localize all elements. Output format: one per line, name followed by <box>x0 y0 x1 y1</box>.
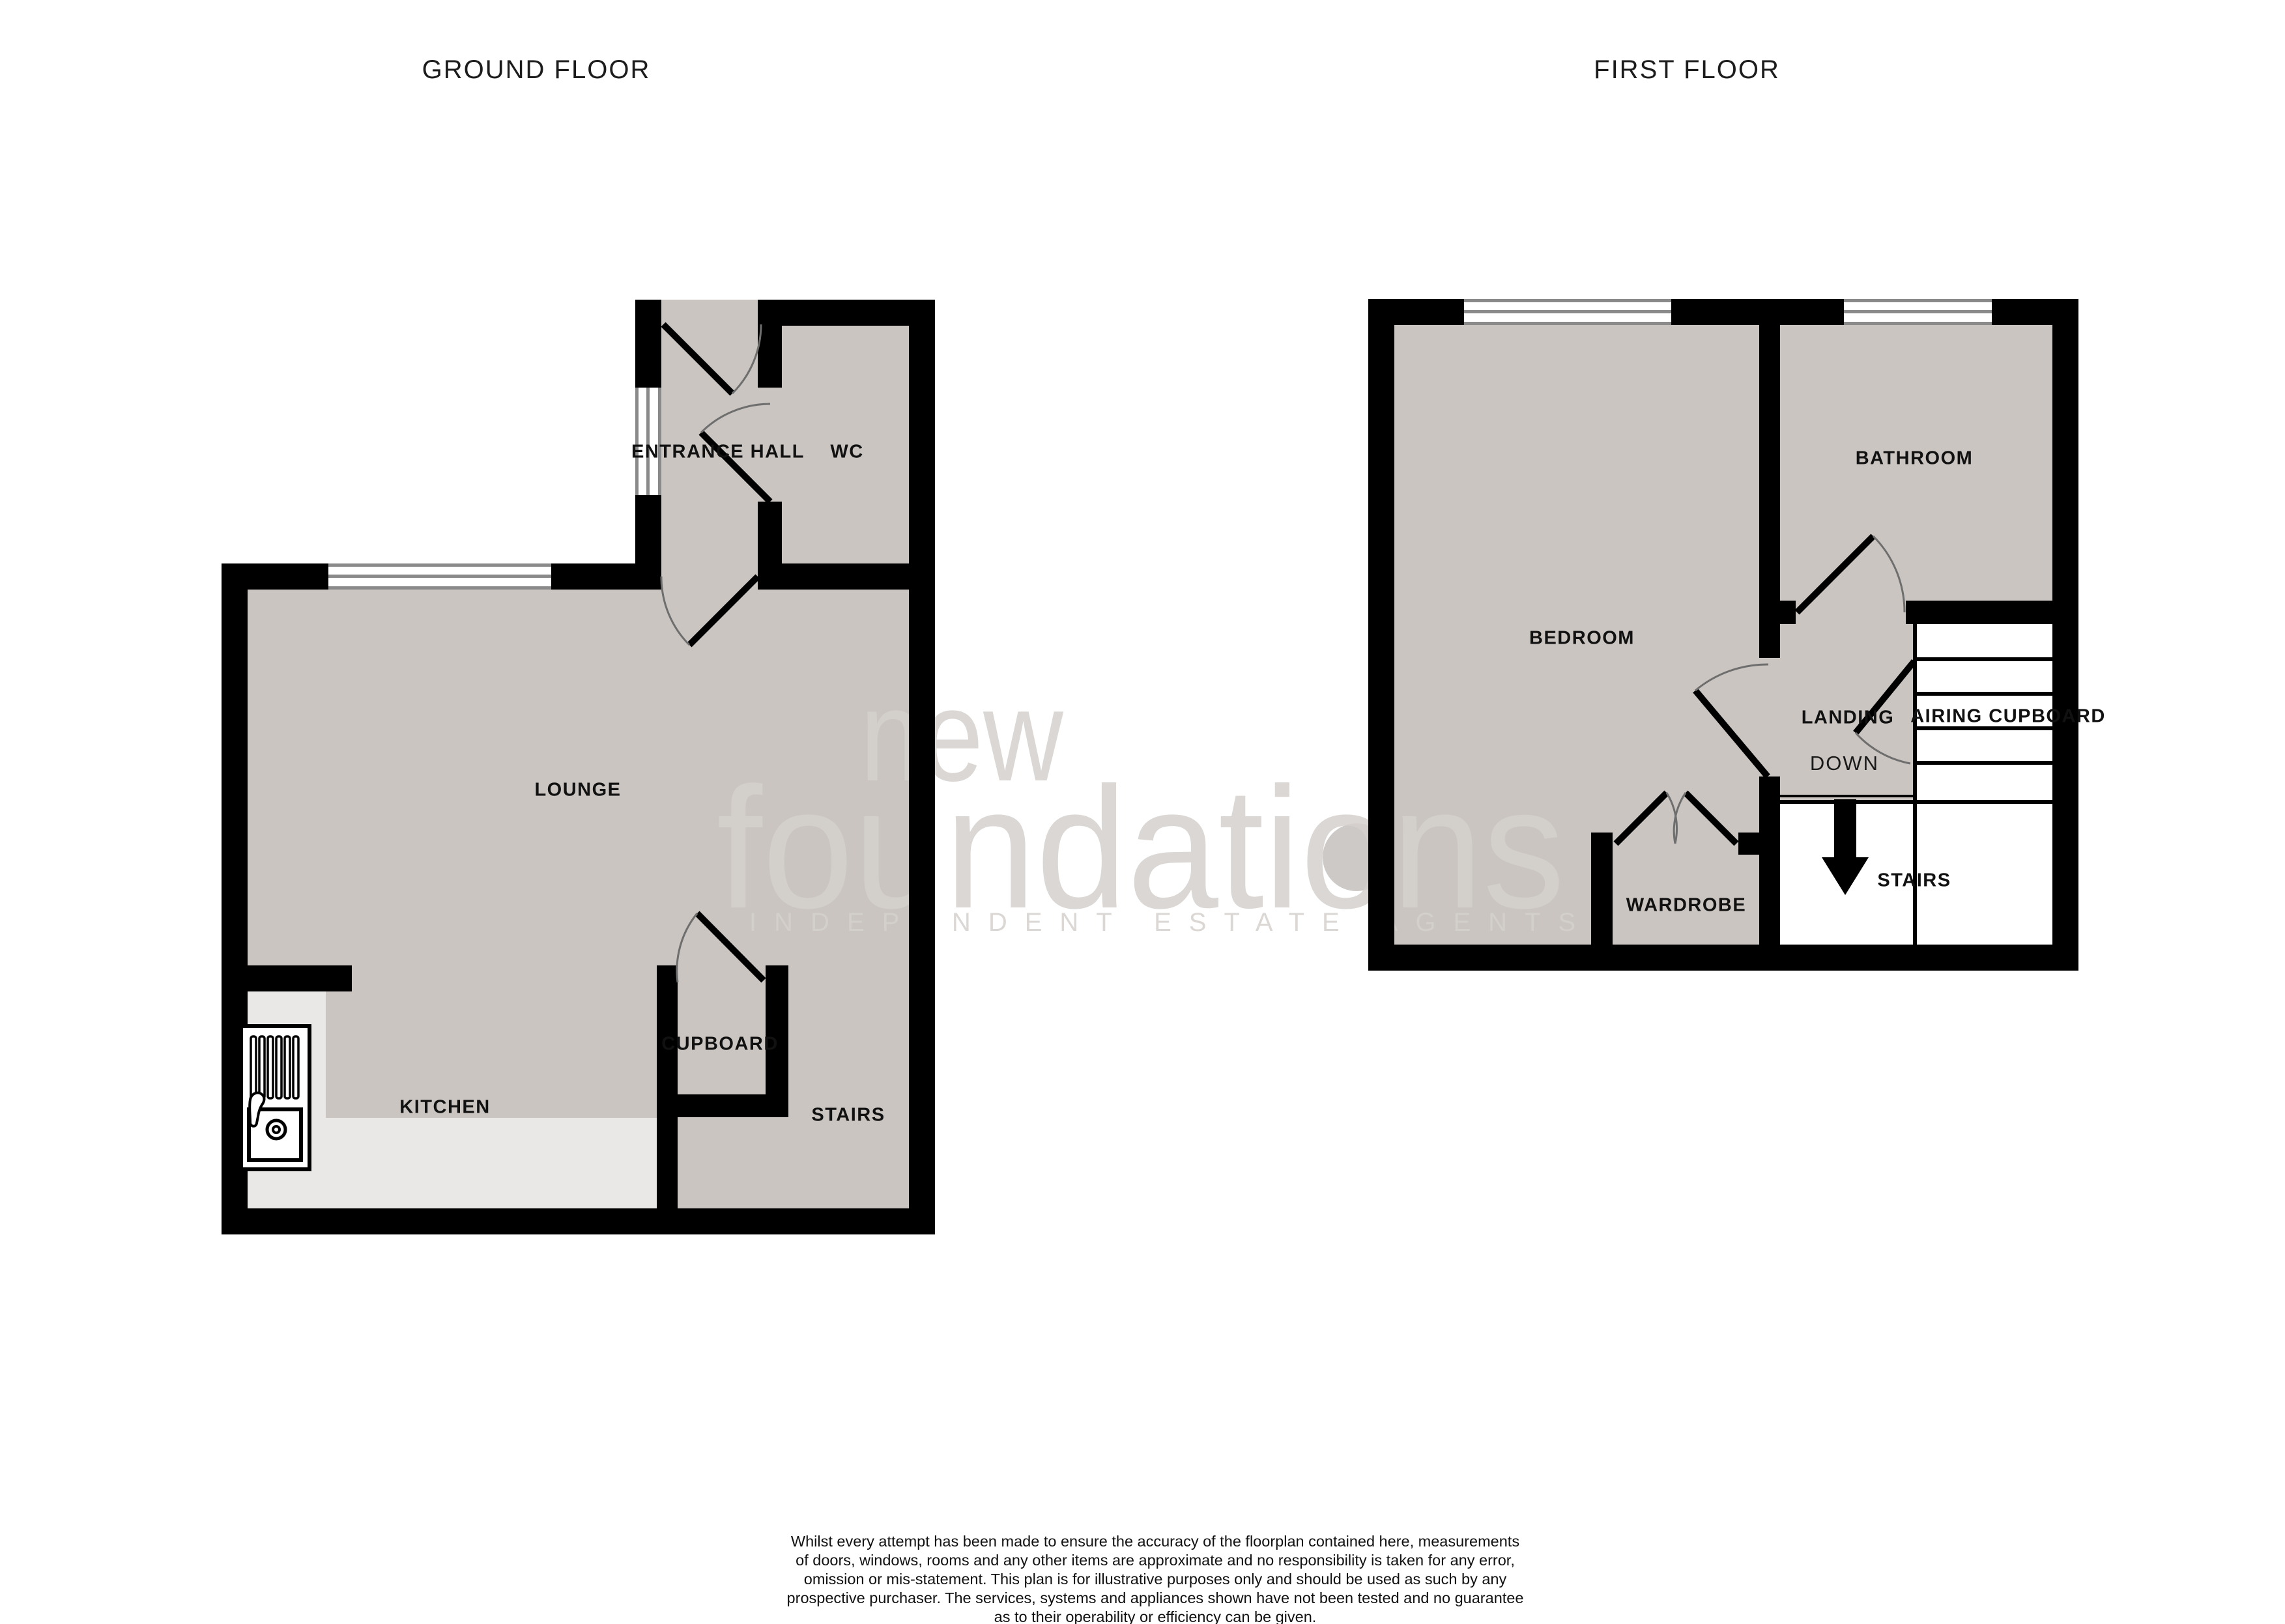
bedroom-door-arc <box>1695 664 1768 691</box>
room-label-cupboard: CUPBOARD <box>661 1034 779 1055</box>
floorplan-symbols <box>0 0 2285 1624</box>
stairs-down-arrow-icon <box>1822 799 1869 895</box>
room-label-wardrobe: WARDROBE <box>1626 895 1746 917</box>
bathroom-door-leaf <box>1797 536 1873 612</box>
wardrobe-door-right-leaf <box>1686 793 1736 844</box>
hall-lounge-door-leaf <box>689 577 758 645</box>
entrance-door-arc <box>732 324 761 393</box>
room-label-kitchen: KITCHEN <box>399 1097 490 1118</box>
kitchen-sink-icon <box>241 1026 309 1169</box>
disclaimer-line: Whilst every attempt has been made to en… <box>719 1532 1592 1551</box>
room-label-wc: WC <box>830 442 863 463</box>
wc-door-arc <box>701 404 770 433</box>
room-label-lounge: LOUNGE <box>534 780 621 801</box>
wardrobe-door-left-leaf <box>1616 793 1667 844</box>
floorplan-page: GROUND FLOOR FIRST FLOOR new foundations… <box>0 0 2285 1624</box>
room-label-stairs-ground: STAIRS <box>811 1105 885 1126</box>
disclaimer-line: omission or mis-statement. This plan is … <box>719 1570 1592 1589</box>
room-label-stairs-first: STAIRS <box>1877 870 1951 892</box>
room-label-airing-cupboard: AIRING CUPBOARD <box>1910 706 2106 728</box>
door-leaves-ground <box>663 324 770 980</box>
door-arcs-ground <box>661 324 770 982</box>
hall-lounge-door-arc <box>661 577 689 645</box>
room-label-bedroom: BEDROOM <box>1529 628 1635 649</box>
label-down: DOWN <box>1810 752 1879 775</box>
cupboard-door-leaf <box>697 913 764 980</box>
bathroom-door-arc <box>1873 536 1904 612</box>
entrance-door-leaf <box>663 324 732 393</box>
cupboard-door-arc <box>677 913 697 982</box>
disclaimer-line: prospective purchaser. The services, sys… <box>719 1589 1592 1608</box>
disclaimer: Whilst every attempt has been made to en… <box>719 1532 1592 1624</box>
door-leaves-first <box>1616 536 1914 844</box>
disclaimer-line: as to their operability or efficiency ca… <box>719 1608 1592 1624</box>
bedroom-door-leaf <box>1695 691 1768 776</box>
room-label-entrance-hall: ENTRANCE HALL <box>631 442 805 463</box>
room-label-landing: LANDING <box>1802 707 1895 729</box>
door-arcs-first <box>1667 536 1910 844</box>
disclaimer-line: of doors, windows, rooms and any other i… <box>719 1551 1592 1570</box>
stairs-lines <box>1780 624 2052 945</box>
room-label-bathroom: BATHROOM <box>1856 448 1974 470</box>
